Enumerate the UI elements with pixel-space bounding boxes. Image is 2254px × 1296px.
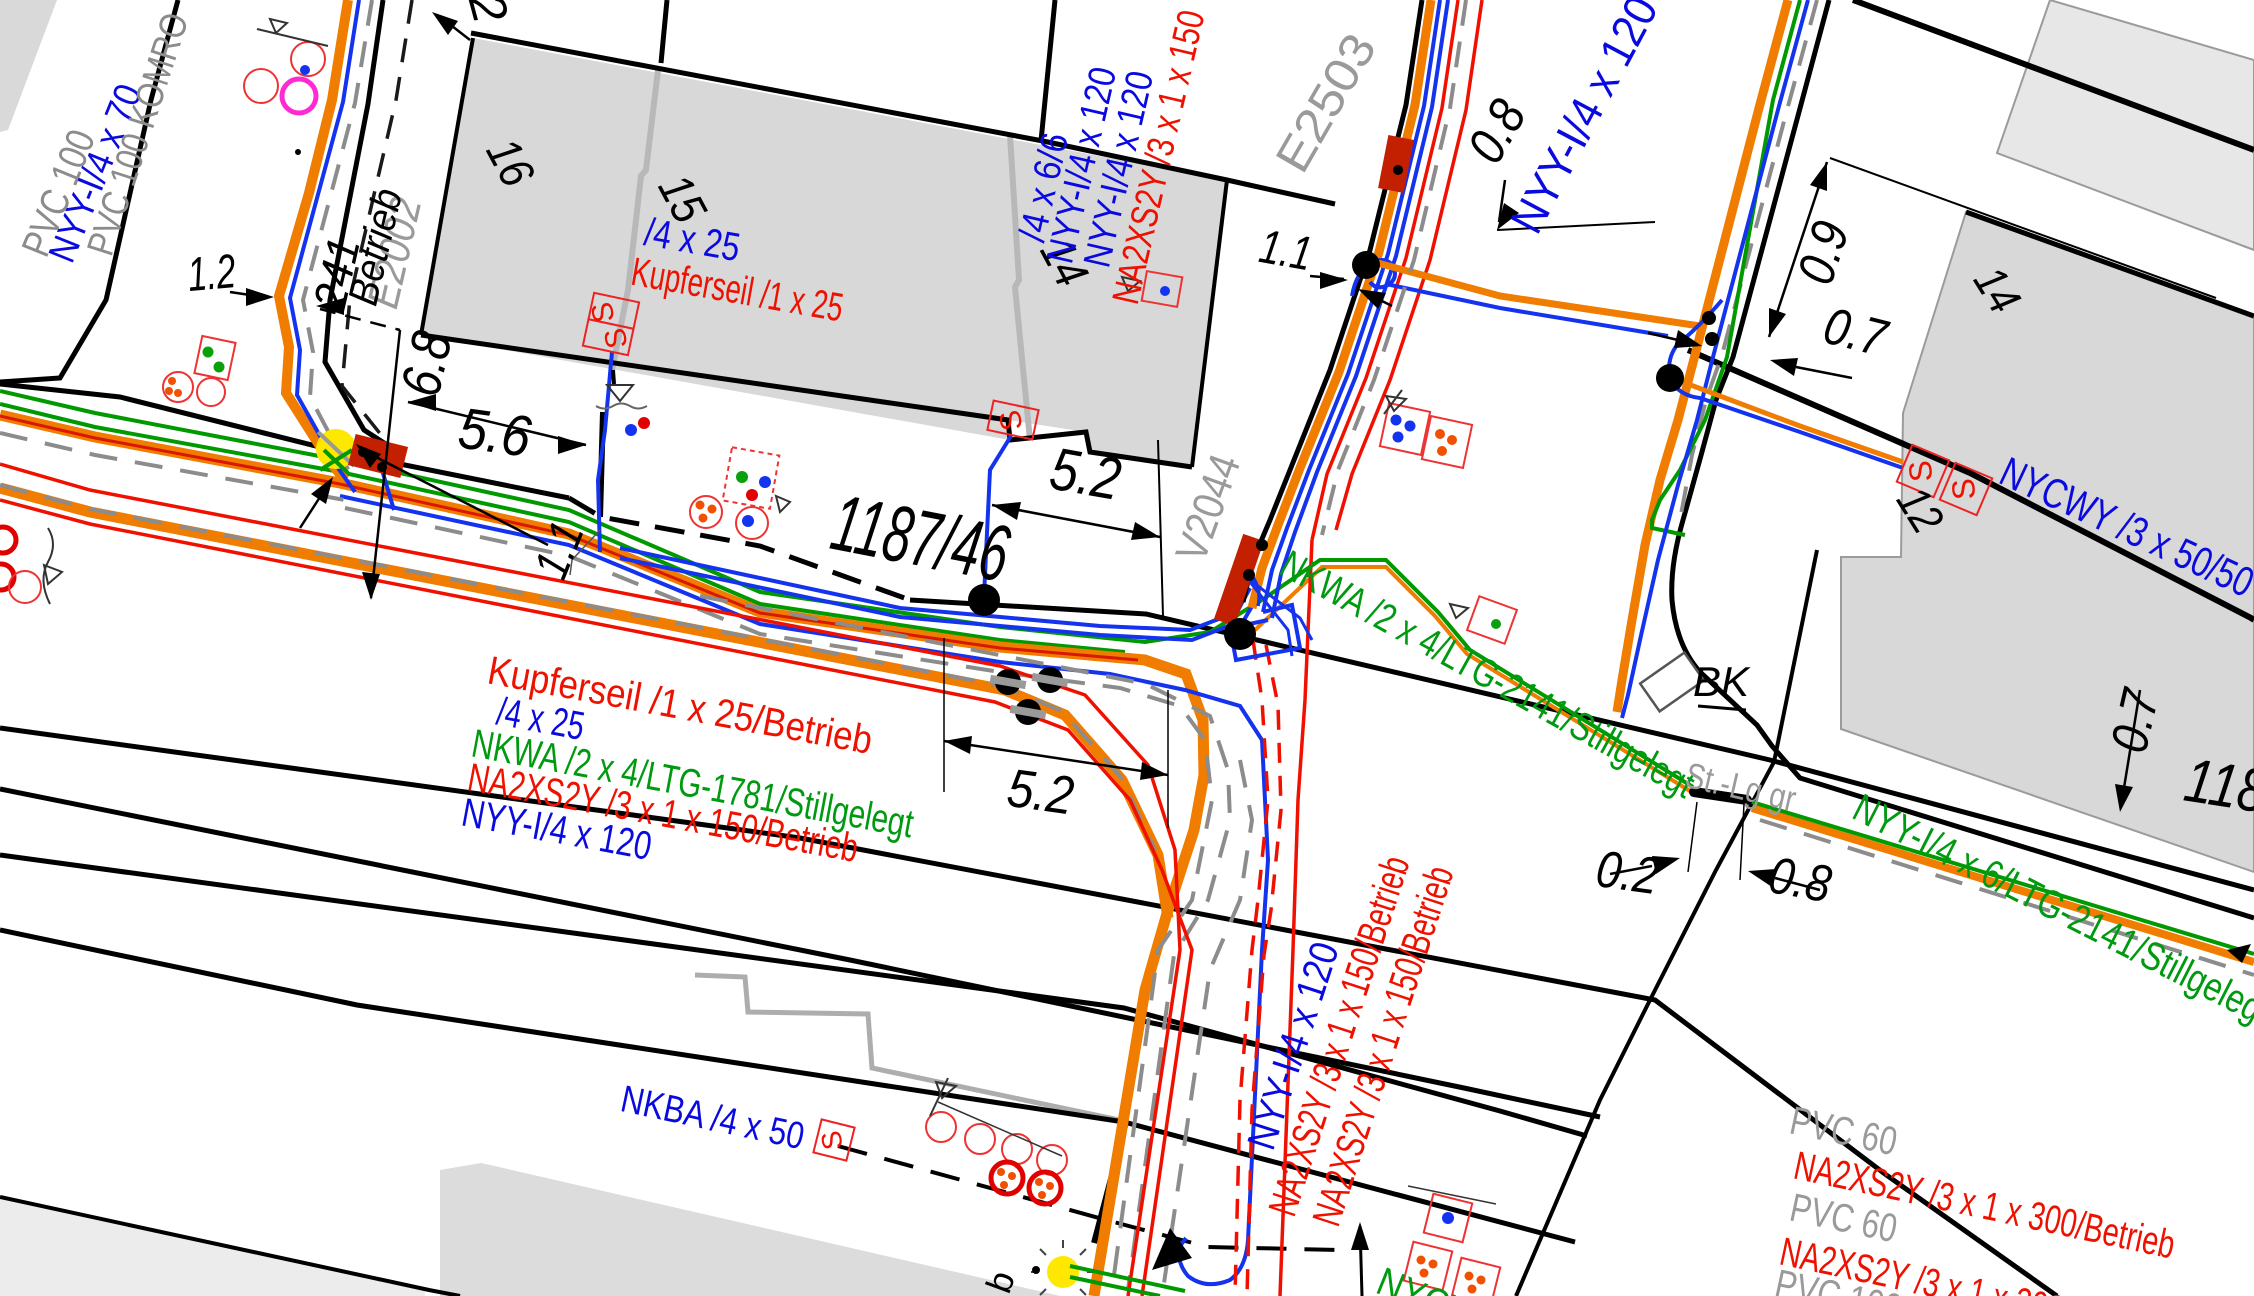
svg-text:118: 118 bbox=[2180, 746, 2254, 827]
svg-text:0.2: 0.2 bbox=[1593, 840, 1663, 906]
svg-text:5.2: 5.2 bbox=[1045, 435, 1126, 513]
svg-text:BK: BK bbox=[1693, 658, 1751, 705]
svg-text:1.1: 1.1 bbox=[1255, 220, 1315, 281]
svg-text:S: S bbox=[1945, 477, 1983, 501]
svg-text:1.2: 1.2 bbox=[185, 245, 237, 302]
svg-text:5.6: 5.6 bbox=[455, 395, 536, 469]
svg-text:0.8: 0.8 bbox=[1764, 846, 1835, 914]
svg-text:5.2: 5.2 bbox=[1004, 758, 1078, 827]
